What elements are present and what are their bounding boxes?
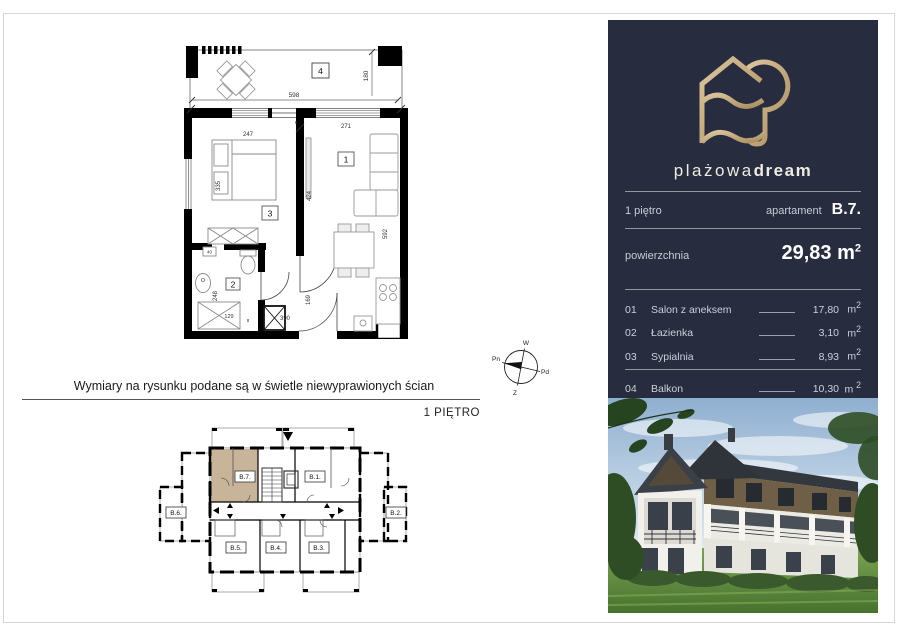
unit-label-b2[interactable]: B.2.	[386, 507, 406, 518]
brand-logo-icon	[678, 40, 808, 150]
divider-line	[22, 399, 480, 400]
svg-text:390: 390	[280, 316, 291, 322]
svg-text:248: 248	[213, 290, 219, 301]
building-photo	[608, 398, 878, 613]
room-number-balcony: 4	[318, 66, 323, 76]
compass-z: Z	[513, 390, 517, 397]
shower	[198, 302, 240, 329]
building-floor-plan: B.7. B.1. B.2. B.6. B.5. B.4.	[155, 426, 411, 596]
area-label: powierzchnia	[625, 250, 689, 262]
svg-text:B.3.: B.3.	[313, 545, 325, 552]
floor-apartment-row: 1 piętro apartament B.7.	[608, 192, 878, 228]
svg-text:B.4.: B.4.	[270, 545, 282, 552]
room-number-living: 1	[344, 155, 349, 165]
north-arrow	[504, 362, 522, 369]
compass-pn: Pn	[492, 356, 500, 363]
svg-text:B.2.: B.2.	[390, 510, 402, 517]
balcony-area: 598 180 4	[186, 46, 402, 110]
room-row-sypialnia: 03 Sypialnia 8,93 m2	[608, 343, 878, 367]
svg-text:B.1.: B.1.	[309, 474, 321, 481]
logo-wave-upper	[702, 95, 763, 106]
svg-text:8: 8	[247, 318, 250, 323]
svg-text:169: 169	[306, 294, 312, 305]
brand-name-light: plażowa	[674, 161, 754, 180]
compass-pd: Pd	[541, 369, 549, 376]
wardrobe	[208, 228, 258, 244]
svg-text:271: 271	[341, 124, 352, 130]
leader-line	[759, 358, 795, 360]
sofa	[354, 134, 398, 216]
floor-label: 1 piętro	[625, 205, 662, 217]
svg-text:335: 335	[216, 180, 222, 191]
total-area-value: 29,83 m2	[781, 242, 861, 265]
logo-wave-lower	[702, 132, 765, 142]
compass-w: W	[523, 340, 530, 347]
svg-text:40: 40	[207, 250, 213, 255]
leader-line	[759, 390, 795, 392]
svg-text:592: 592	[383, 228, 389, 239]
unit-label-b7[interactable]: B.7.	[235, 471, 255, 482]
compass-rose: W Pd Z Pn	[489, 336, 553, 400]
unit-label-b5[interactable]: B.5.	[226, 542, 246, 553]
kitchen	[354, 278, 400, 331]
leader-line	[759, 311, 795, 313]
room-row-lazienka: 02 Łazienka 3,10 m2	[608, 320, 878, 344]
unit-label-b4[interactable]: B.4.	[266, 542, 286, 553]
dining-set	[334, 224, 374, 277]
floor-plan-title: 1 PIĘTRO	[22, 407, 480, 419]
svg-text:129: 129	[224, 314, 233, 320]
svg-text:B.6.: B.6.	[170, 510, 182, 517]
room-row-salon: 01 Salon z aneksem 17,80 m2	[608, 296, 878, 320]
apartment-label: apartament	[766, 205, 822, 217]
svg-text:B.7.: B.7.	[239, 474, 251, 481]
svg-text:424: 424	[307, 190, 313, 201]
unit-label-b6[interactable]: B.6.	[166, 507, 186, 518]
brand-name: plażowadream	[608, 161, 878, 181]
unit-label-b3[interactable]: B.3.	[309, 542, 329, 553]
room-list: 01 Salon z aneksem 17,80 m2 02 Łazienka …	[608, 290, 878, 369]
room-number-bath: 2	[231, 280, 236, 290]
area-row: powierzchnia 29,83 m2	[608, 229, 878, 289]
dim-balcony-width: 598	[289, 92, 300, 99]
room-number-bedroom: 3	[268, 209, 273, 219]
svg-text:B.5.: B.5.	[230, 545, 242, 552]
apartment-number: B.7.	[832, 201, 861, 219]
leader-line	[759, 334, 795, 336]
page: 598 180 4	[0, 0, 900, 636]
dimensions-note: Wymiary na rysunku podane są w świetle n…	[25, 379, 483, 393]
svg-text:247: 247	[243, 132, 254, 138]
dim-balcony-height: 180	[363, 70, 370, 81]
brand-name-bold: dream	[754, 161, 813, 180]
info-panel: plażowadream 1 piętro apartament B.7. po…	[608, 20, 878, 613]
apartment-floor-plan: 598 180 4	[184, 44, 408, 339]
room-row-balkon: 04 Balkon 10,30 m 2	[608, 370, 878, 400]
unit-label-b1[interactable]: B.1.	[305, 471, 325, 482]
